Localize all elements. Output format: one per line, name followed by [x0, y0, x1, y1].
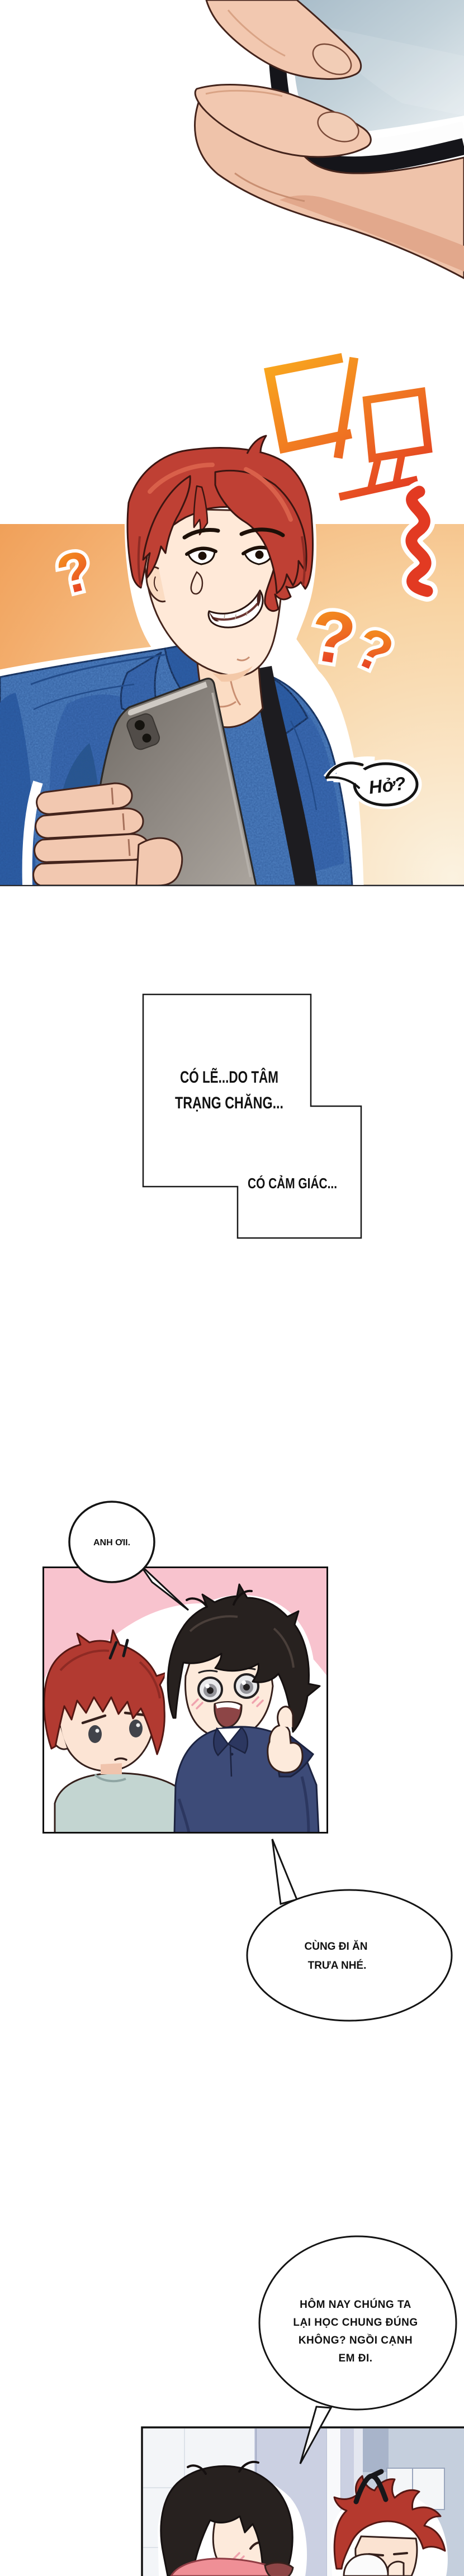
svg-text:TRƯA NHÉ.: TRƯA NHÉ.	[308, 1959, 367, 1972]
svg-text:EM ĐI.: EM ĐI.	[338, 2353, 372, 2364]
svg-text:CÙNG ĐI ĂN: CÙNG ĐI ĂN	[305, 1940, 368, 1953]
svg-text:CÓ LẼ...DO TÂM: CÓ LẼ...DO TÂM	[180, 1068, 278, 1087]
svg-text:ANH ƠII.: ANH ƠII.	[93, 1538, 130, 1547]
svg-text:HÔM NAY CHÚNG TA: HÔM NAY CHÚNG TA	[300, 2298, 411, 2311]
svg-text:LẠI HỌC CHUNG ĐÚNG: LẠI HỌC CHUNG ĐÚNG	[293, 2316, 418, 2329]
svg-text:TRẠNG CHĂNG...: TRẠNG CHĂNG...	[175, 1093, 283, 1112]
svg-text:CÓ CẢM GIÁC...: CÓ CẢM GIÁC...	[248, 1175, 337, 1192]
svg-text:KHÔNG? NGỒI CẠNH: KHÔNG? NGỒI CẠNH	[299, 2334, 413, 2346]
